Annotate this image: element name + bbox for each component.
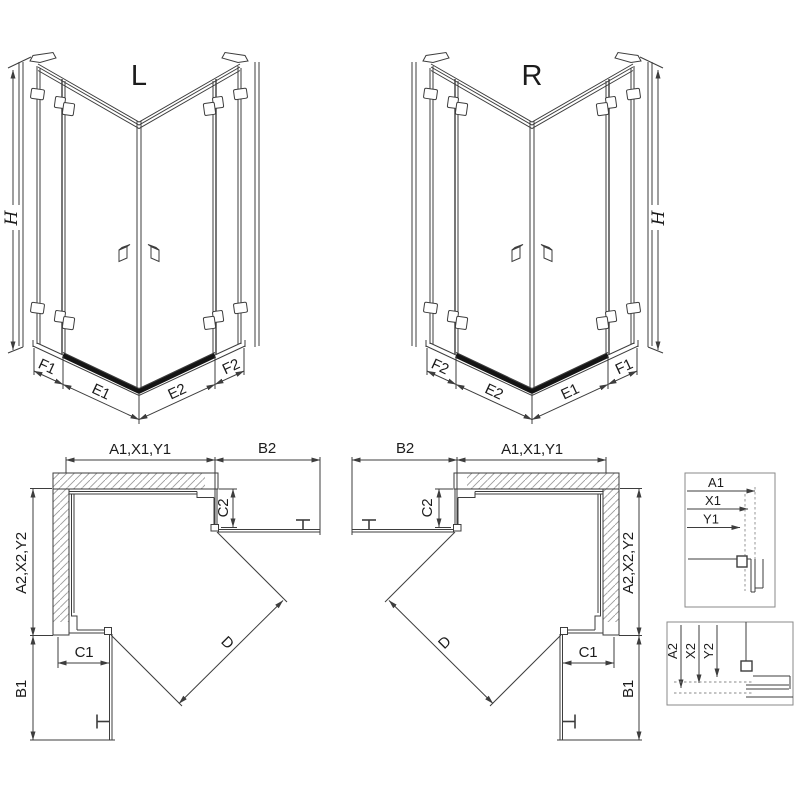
iso-left-dim-f2: F2 [220, 356, 243, 379]
iso-right-dim-e2: E2 [482, 380, 505, 403]
plan-left-dim-b1: B1 [13, 680, 30, 698]
plan-right-dim-b2: B2 [396, 440, 414, 457]
iso-left-dim-h: H [2, 209, 22, 226]
iso-right-dim-h: H [649, 209, 669, 226]
iso-left-label: L [131, 60, 147, 92]
plan-left-dim-c1: C1 [75, 644, 94, 661]
shower-enclosure-dimension-diagram: L H F1 E1 E2 F2 R H F2 E2 E1 F1 A1,X1,Y1… [0, 0, 800, 800]
wall-profile-section [741, 622, 793, 697]
detail-dim-x2: X2 [683, 643, 698, 659]
plan-left-dim-c2: C2 [215, 499, 232, 518]
plan-right-dim-top-width: A1,X1,Y1 [501, 441, 563, 458]
detail-widths-border [685, 473, 775, 607]
detail-dim-a2: A2 [665, 643, 680, 659]
iso-view-left: L H F1 E1 E2 F2 [2, 53, 259, 425]
plan-right-dim-c2: C2 [419, 499, 436, 518]
iso-right-dim-f1: F1 [613, 356, 636, 379]
plan-left-walls [53, 473, 218, 635]
wall-profile-section [688, 556, 763, 592]
plan-left-dim-top-width: A1,X1,Y1 [109, 441, 171, 458]
plan-left-dim-b2: B2 [258, 440, 276, 457]
plan-left-dim-side-depth: A2,X2,Y2 [13, 532, 30, 594]
plan-right-dim-side-depth: A2,X2,Y2 [620, 532, 637, 594]
iso-view-right: R H F2 E2 E1 F1 [412, 53, 669, 425]
iso-left-dim-e1: E1 [89, 380, 112, 403]
detail-view-widths: A1 X1 Y1 [685, 473, 775, 607]
iso-right-dim-f2: F2 [429, 356, 452, 379]
detail-dim-a1: A1 [708, 475, 724, 490]
detail-view-depths: A2 X2 Y2 [665, 622, 793, 705]
iso-right-label: R [522, 60, 543, 92]
plan-left-dim-d: D [217, 633, 237, 653]
detail-dim-y2: Y2 [701, 643, 716, 659]
diagram-canvas: L H F1 E1 E2 F2 R H F2 E2 E1 F1 A1,X1,Y1… [0, 0, 800, 800]
iso-right-dim-e1: E1 [558, 380, 581, 403]
plan-right-dim-b1: B1 [620, 680, 637, 698]
plan-left-drawing [30, 457, 320, 740]
iso-left-dim-f1: F1 [36, 356, 59, 379]
detail-dim-y1: Y1 [703, 512, 719, 527]
iso-left-dim-e2: E2 [165, 380, 188, 403]
detail-dim-x1: X1 [705, 493, 721, 508]
plan-right-dim-c1: C1 [579, 644, 598, 661]
plan-view-left: A1,X1,Y1 B2 C2 A2,X2,Y2 C1 B1 D [13, 440, 320, 740]
plan-view-right: B2 A1,X1,Y1 C2 A2,X2,Y2 C1 B1 D [352, 440, 642, 740]
plan-right-walls [454, 473, 619, 635]
plan-right-drawing [352, 457, 642, 740]
